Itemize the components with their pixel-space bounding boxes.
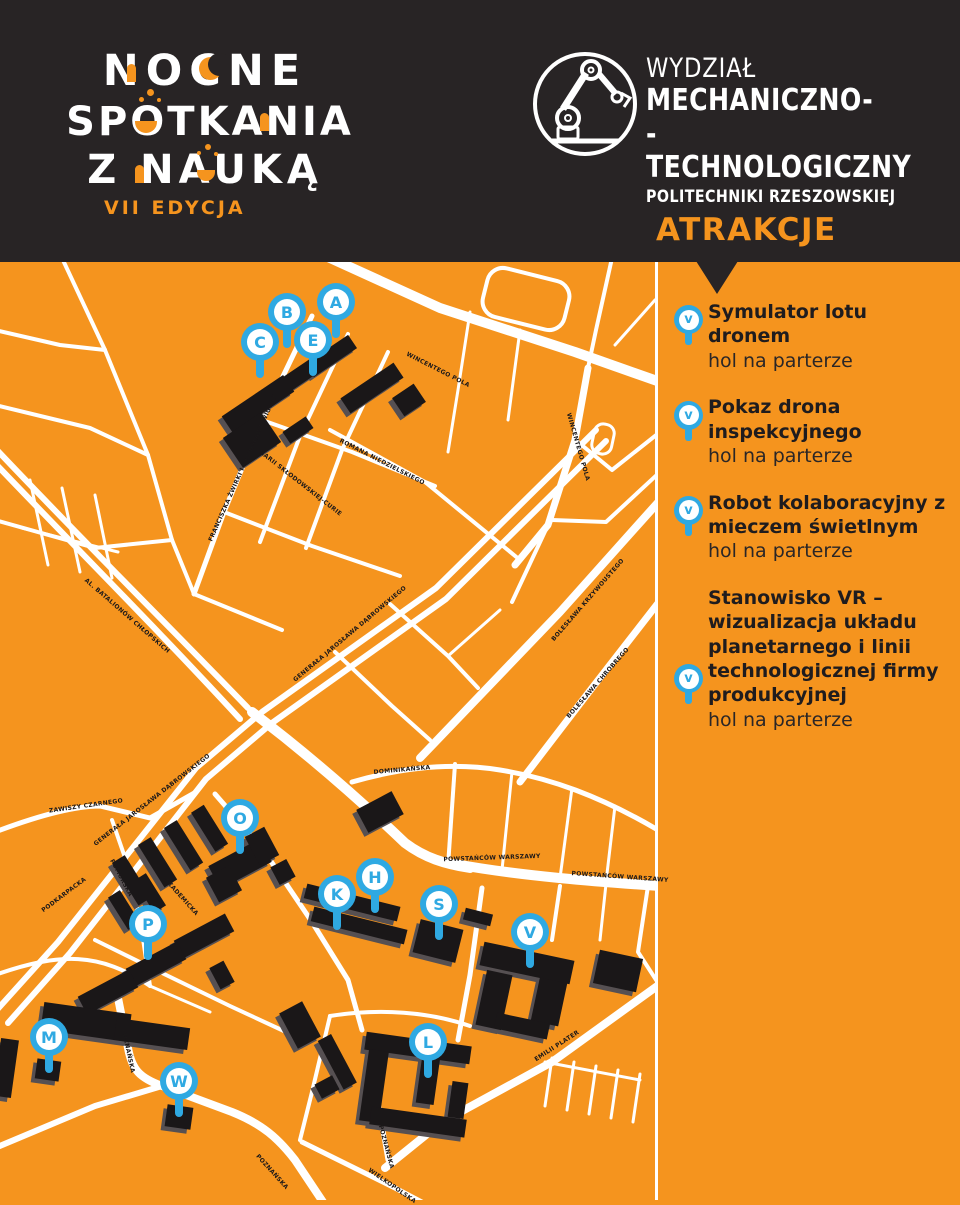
pointer-triangle — [696, 261, 738, 294]
attraction-item: v Robot kolaboracyjny z mieczem świetlny… — [668, 491, 952, 564]
faculty-line3: -TECHNOLOGICZNY — [646, 118, 911, 185]
map-pin-icon: v — [668, 496, 708, 540]
pin-circle: v — [674, 664, 703, 693]
faculty-line2: MECHANICZNO- — [646, 84, 911, 118]
attraction-location: hol na parterze — [708, 708, 948, 733]
attraction-title: Stanowisko VR – wizualizacja układu plan… — [708, 586, 948, 708]
faculty-name: WYDZIAŁ MECHANICZNO- -TECHNOLOGICZNY POL… — [646, 54, 911, 207]
attraction-title: Symulator lotu dronem — [708, 300, 948, 349]
header-bar: NOCNE SPOTKANIA Z NAUKĄ VII EDYCJA WYDZI… — [0, 0, 960, 262]
map-pin-icon: v — [668, 305, 708, 349]
map-pin-icon: v — [668, 664, 708, 708]
attraction-item: v Stanowisko VR – wizualizacja układu pl… — [668, 586, 952, 732]
attractions-list: v Symulator lotu dronem hol na parterze … — [668, 300, 952, 732]
attraction-location: hol na parterze — [708, 349, 948, 374]
attractions-heading: ATRAKCJE — [656, 212, 837, 248]
pin-circle: v — [674, 305, 703, 334]
attraction-item: v Symulator lotu dronem hol na parterze — [668, 300, 952, 373]
faculty-line4: POLITECHNIKI RZESZOWSKIEJ — [646, 188, 911, 207]
attraction-item: v Pokaz drona inspekcyjnego hol na parte… — [668, 395, 952, 468]
attraction-location: hol na parterze — [708, 444, 948, 469]
campus-buildings — [0, 335, 643, 1142]
attraction-title: Robot kolaboracyjny z mieczem świetlnym — [708, 491, 948, 540]
map-pin-icon: v — [668, 401, 708, 445]
pin-letter: v — [679, 500, 699, 520]
pin-letter: v — [679, 669, 699, 689]
sidebar-divider-line — [655, 262, 658, 1200]
pin-circle: v — [674, 496, 703, 525]
pin-letter: v — [679, 405, 699, 425]
pin-letter: v — [679, 310, 699, 330]
faculty-line1: WYDZIAŁ — [646, 54, 911, 84]
attraction-location: hol na parterze — [708, 539, 948, 564]
pin-circle: v — [674, 401, 703, 430]
attraction-title: Pokaz drona inspekcyjnego — [708, 395, 948, 444]
